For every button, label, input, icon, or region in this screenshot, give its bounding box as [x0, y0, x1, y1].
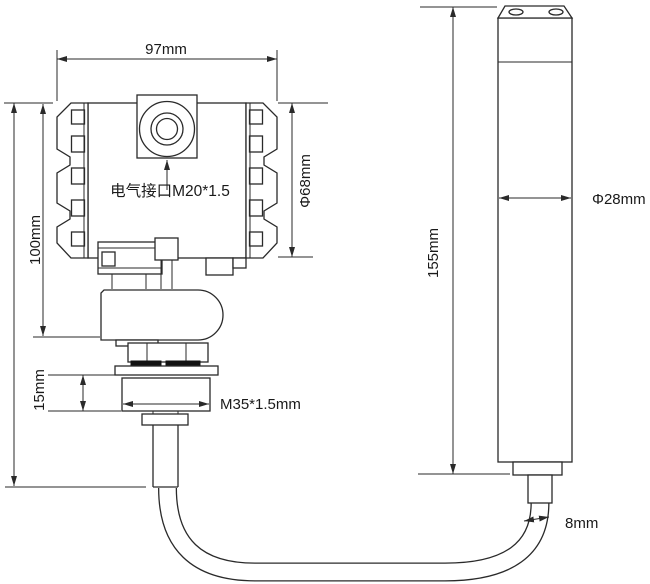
center-post-block	[155, 238, 178, 260]
probe-view	[498, 6, 572, 503]
right-under-step-small	[233, 258, 246, 268]
process-connection	[115, 343, 218, 487]
probe-body	[498, 18, 572, 462]
dimension-label-68mm: Φ68mm	[297, 154, 314, 208]
dimension-label-100mm: 100mm	[27, 215, 44, 265]
electrical-connector	[137, 95, 197, 158]
collar	[142, 414, 188, 425]
electrical-interface-label: 电气接口M20*1.5	[110, 182, 230, 200]
right-under-step	[206, 258, 233, 275]
dimension-label-15mm: 15mm	[31, 369, 48, 411]
right-cap-outline	[246, 103, 277, 258]
dimension-label-28mm: Φ28mm	[592, 191, 646, 208]
dimension-drawing-canvas: 97mm 100mm 15mm Φ68mm	[0, 0, 650, 584]
dimension-155mm: 155mm	[418, 7, 510, 474]
probe-cable-gland	[528, 475, 552, 503]
connector-neck	[137, 95, 197, 158]
flange-plate	[115, 366, 218, 375]
dimension-15mm: 15mm	[31, 369, 121, 411]
housing-left-end-cap	[57, 103, 88, 258]
gasket-left	[131, 361, 161, 366]
dimension-97mm: 97mm	[57, 41, 277, 101]
dimension-label-m35: M35*1.5mm	[220, 396, 301, 413]
dimension-label-97mm: 97mm	[145, 41, 187, 58]
dimension-drawing: 97mm 100mm 15mm Φ68mm	[0, 0, 650, 584]
connection-cable	[168, 488, 541, 572]
housing-right-end-cap	[246, 103, 277, 258]
cable-outline	[168, 488, 541, 572]
transmitter-view	[57, 95, 277, 487]
m35-hex-nut	[122, 378, 210, 411]
lower-rounded-body	[101, 290, 223, 340]
gasket-right	[166, 361, 200, 366]
dimension-68mm: Φ68mm	[278, 103, 328, 257]
dimension-label-8mm: 8mm	[565, 515, 598, 532]
upper-hex-nut	[128, 343, 208, 362]
probe-bottom-step	[513, 462, 562, 475]
left-cap-outline	[57, 103, 88, 258]
dimension-label-155mm: 155mm	[425, 228, 442, 278]
terminal-block	[98, 242, 162, 274]
